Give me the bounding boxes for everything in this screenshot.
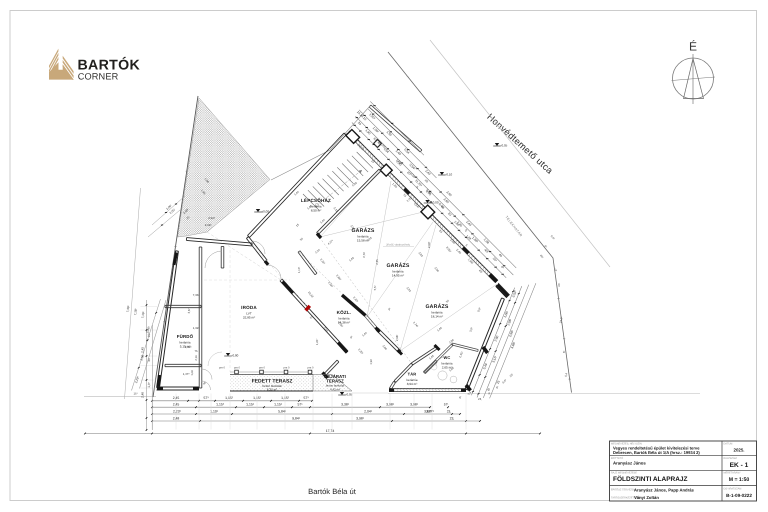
svg-text:7,36²: 7,36² (193, 293, 200, 297)
svg-text:1,90: 1,90 (369, 359, 373, 365)
svg-text:1,15²: 1,15² (225, 396, 234, 400)
svg-text:1,15²: 1,15² (253, 396, 262, 400)
svg-text:2,98²: 2,98² (395, 335, 399, 342)
svg-text:EK - 1: EK - 1 (730, 462, 749, 469)
svg-text:WC: WC (443, 355, 450, 360)
svg-text:4,42 m²: 4,42 m² (330, 387, 340, 391)
svg-text:2,02²: 2,02² (205, 223, 212, 227)
svg-text:2,04¹: 2,04¹ (364, 409, 373, 413)
svg-text:ÉPÍTTETŐ: ÉPÍTTETŐ (611, 456, 623, 460)
svg-text:76: 76 (195, 350, 198, 353)
svg-text:2,23⁵: 2,23⁵ (173, 409, 182, 413)
svg-text:9,84¹: 9,84¹ (292, 416, 301, 420)
svg-text:-0,05: -0,05 (346, 393, 353, 397)
svg-text:M = 1:50: M = 1:50 (729, 477, 750, 483)
svg-text:5,5²: 5,5² (373, 285, 377, 290)
svg-text:pm 0: pm 0 (234, 366, 240, 369)
svg-text:Aranyász János: Aranyász János (613, 461, 646, 466)
svg-text:23,: 23, (447, 409, 452, 413)
svg-text:57³: 57³ (204, 396, 210, 400)
svg-text:±0,00: ±0,00 (262, 210, 270, 214)
svg-text:1,0⁷: 1,0⁷ (147, 382, 151, 388)
svg-text:1,26⁷: 1,26⁷ (315, 339, 319, 346)
svg-text:3,98¹: 3,98¹ (386, 403, 395, 407)
svg-text:MÉRETARÁNY: MÉRETARÁNY (724, 471, 742, 475)
svg-text:7,49¹: 7,49¹ (126, 305, 131, 312)
svg-text:pm 0: pm 0 (219, 366, 225, 369)
svg-text:18,14 m²: 18,14 m² (431, 315, 443, 319)
svg-text:Ványi Zoltán: Ványi Zoltán (634, 495, 659, 500)
svg-text:1,17¹: 1,17¹ (297, 267, 301, 274)
svg-text:3,98¹: 3,98¹ (410, 403, 419, 407)
svg-text:pm 0: pm 0 (308, 366, 314, 369)
svg-text:7,19¹: 7,19¹ (141, 311, 146, 318)
svg-text:6,35 m²: 6,35 m² (267, 388, 277, 392)
svg-text:2025.: 2025. (734, 448, 745, 453)
svg-text:0,70: 0,70 (362, 252, 366, 258)
svg-text:17,74: 17,74 (326, 429, 335, 433)
svg-text:5,84¹: 5,84¹ (278, 409, 287, 413)
svg-text:FÖLDSZINTI ALAPRAJZ: FÖLDSZINTI ALAPRAJZ (613, 475, 688, 483)
svg-text:57¹: 57¹ (298, 403, 304, 407)
svg-text:3,6⁷: 3,6⁷ (187, 308, 191, 313)
svg-text:RAJZ MEGNEVEZÉSE: RAJZ MEGNEVEZÉSE (611, 471, 637, 475)
svg-text:3,38¹: 3,38¹ (341, 403, 350, 407)
svg-text:8,50 m²: 8,50 m² (311, 209, 322, 213)
svg-text:23,: 23, (478, 397, 482, 401)
svg-text:1,15³: 1,15³ (216, 403, 225, 407)
svg-text:15¹: 15¹ (133, 392, 137, 396)
svg-text:1,15²: 1,15² (274, 403, 283, 407)
svg-text:KÖZL.: KÖZL. (337, 310, 352, 315)
svg-text:pm 0: pm 0 (284, 366, 290, 369)
svg-text:LÉPCSŐHÁZ: LÉPCSŐHÁZ (301, 197, 331, 203)
svg-text:Debrecen, Bartók Béla út 1/A (: Debrecen, Bartók Béla út 1/A (hrsz.: 199… (613, 450, 700, 455)
svg-text:-0,80: -0,80 (232, 354, 239, 358)
svg-text:GARÁZS: GARÁZS (425, 303, 448, 310)
svg-text:pm 0: pm 0 (259, 366, 265, 369)
svg-text:ÜGYIRATSZÁM: ÜGYIRATSZÁM (724, 487, 742, 491)
svg-text:14,95 m²: 14,95 m² (392, 274, 404, 278)
svg-text:32,85 m²: 32,85 m² (243, 316, 255, 320)
svg-text:3,87¹: 3,87¹ (426, 409, 435, 413)
svg-text:-0,05: -0,05 (501, 144, 508, 148)
svg-text:2,16: 2,16 (195, 355, 198, 361)
svg-text:2,46: 2,46 (140, 392, 144, 398)
svg-text:57³: 57³ (304, 396, 310, 400)
svg-text:2,92²: 2,92² (208, 216, 215, 220)
svg-text:7,18¹: 7,18¹ (133, 308, 138, 315)
svg-text:10¹: 10¹ (557, 282, 562, 287)
svg-text:1,47³: 1,47³ (183, 372, 190, 376)
svg-text:FÜRDŐ: FÜRDŐ (177, 334, 194, 339)
svg-text:GARÁZS: GARÁZS (386, 262, 409, 269)
svg-text:2,25: 2,25 (375, 259, 379, 265)
svg-text:23,: 23, (450, 416, 455, 420)
svg-text:DÁTUM: DÁTUM (724, 441, 733, 445)
svg-text:57¹: 57¹ (444, 403, 449, 407)
svg-text:1,32²: 1,32² (185, 345, 192, 349)
svg-text:2,90²: 2,90² (427, 242, 431, 249)
svg-text:TÁR: TÁR (408, 372, 417, 377)
svg-text:-0,10: -0,10 (445, 173, 452, 177)
svg-text:ÉPÍTÉSZ TERVEZŐK:: ÉPÍTÉSZ TERVEZŐK: (611, 488, 636, 492)
svg-text:Aranyász János, Papp András: Aranyász János, Papp András (634, 487, 695, 492)
svg-text:2,45: 2,45 (140, 347, 144, 353)
svg-text:1,15²: 1,15² (246, 403, 255, 407)
svg-text:Bartók Béla út: Bartók Béla út (308, 487, 357, 496)
svg-text:IRODA: IRODA (241, 305, 257, 310)
svg-text:8,94 m²: 8,94 m² (407, 382, 418, 386)
svg-text:RAJZSZÁM: RAJZSZÁM (724, 456, 737, 460)
svg-text:1,15²: 1,15² (281, 396, 290, 400)
svg-text:CORNER: CORNER (78, 71, 119, 81)
svg-text:2Rx0E várakozóhely: 2Rx0E várakozóhely (386, 244, 410, 247)
svg-text:1,32²: 1,32² (193, 326, 200, 330)
svg-text:É: É (689, 40, 697, 54)
svg-text:B-1-09-0222: B-1-09-0222 (726, 493, 752, 498)
svg-text:1,08: 1,08 (191, 370, 194, 376)
svg-text:1,10¹: 1,10¹ (210, 409, 219, 413)
svg-text:3,98¹: 3,98¹ (356, 416, 365, 420)
svg-text:±0,00: ±0,00 (431, 201, 439, 205)
